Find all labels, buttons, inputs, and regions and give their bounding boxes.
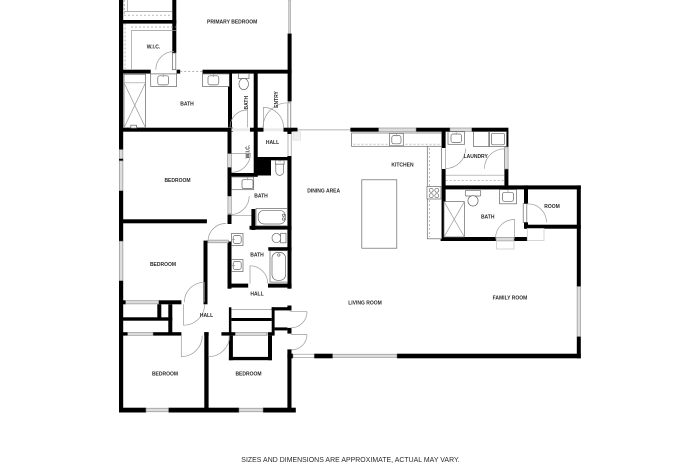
svg-text:HALL: HALL <box>250 292 263 298</box>
svg-text:BEDROOM: BEDROOM <box>235 372 261 378</box>
svg-text:BEDROOM: BEDROOM <box>164 178 190 184</box>
svg-text:HALL: HALL <box>266 140 279 146</box>
svg-text:ENTRY: ENTRY <box>274 90 280 107</box>
svg-text:BEDROOM: BEDROOM <box>152 372 178 378</box>
svg-text:LIVING ROOM: LIVING ROOM <box>348 301 382 307</box>
svg-text:KITCHEN: KITCHEN <box>391 163 414 169</box>
svg-text:LAUNDRY: LAUNDRY <box>464 154 489 160</box>
svg-text:SIZES AND DIMENSIONS ARE APPRO: SIZES AND DIMENSIONS ARE APPROXIMATE, AC… <box>241 457 459 464</box>
svg-text:BATH: BATH <box>180 102 194 108</box>
svg-text:W.I.C.: W.I.C. <box>147 45 161 51</box>
svg-text:BATH: BATH <box>254 194 268 200</box>
svg-text:BEDROOM: BEDROOM <box>150 262 176 268</box>
svg-text:DINING AREA: DINING AREA <box>307 189 340 195</box>
svg-text:FAMILY ROOM: FAMILY ROOM <box>493 296 528 302</box>
svg-text:HALL: HALL <box>200 313 213 319</box>
svg-text:BATH: BATH <box>250 253 264 259</box>
svg-text:PRIMARY BEDROOM: PRIMARY BEDROOM <box>207 20 257 26</box>
svg-text:BATH: BATH <box>481 214 495 220</box>
svg-text:ROOM: ROOM <box>544 204 560 210</box>
svg-text:BATH: BATH <box>244 96 250 110</box>
svg-text:W.I.C.: W.I.C. <box>246 144 252 158</box>
